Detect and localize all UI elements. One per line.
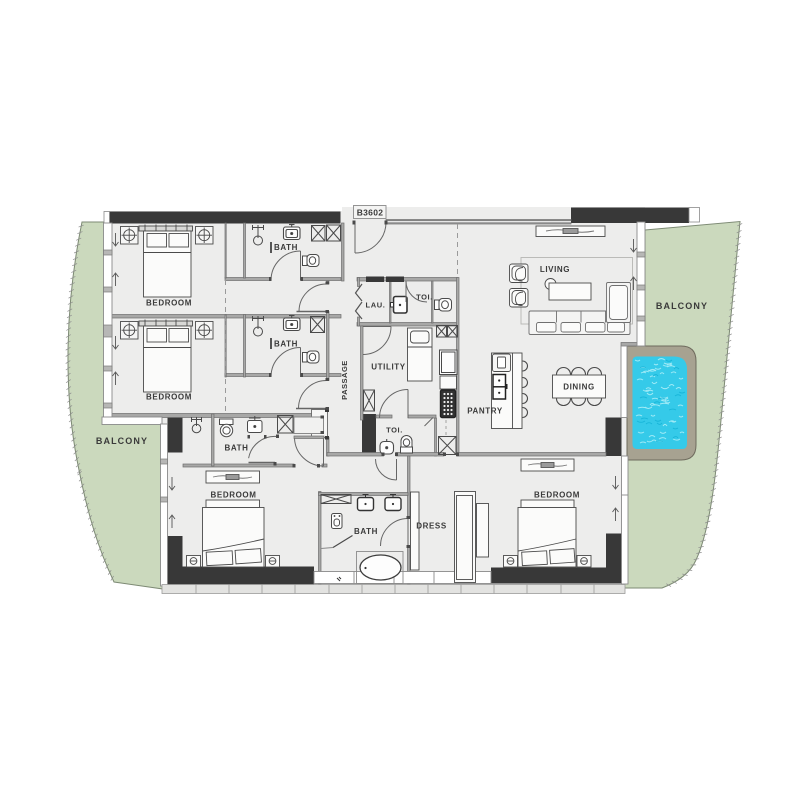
svg-text:BALCONY: BALCONY [96, 436, 148, 446]
svg-text:PASSAGE: PASSAGE [340, 360, 349, 400]
svg-text:BATH: BATH [274, 243, 298, 252]
svg-text:BATH: BATH [274, 340, 298, 349]
svg-text:LAU.: LAU. [366, 301, 386, 310]
svg-text:BEDROOM: BEDROOM [211, 491, 257, 500]
svg-text:UTILITY: UTILITY [371, 363, 405, 372]
svg-text:BATH: BATH [354, 527, 378, 536]
svg-text:TOI.: TOI. [416, 293, 433, 302]
svg-text:BEDROOM: BEDROOM [534, 491, 580, 500]
svg-text:BEDROOM: BEDROOM [146, 299, 192, 308]
svg-text:DINING: DINING [563, 383, 595, 392]
svg-text:LIVING: LIVING [540, 265, 570, 274]
svg-text:PANTRY: PANTRY [467, 407, 503, 416]
svg-text:BATH: BATH [224, 444, 248, 453]
svg-text:BALCONY: BALCONY [656, 301, 708, 311]
svg-text:TOI.: TOI. [386, 426, 403, 435]
svg-text:DRESS: DRESS [416, 522, 447, 531]
svg-text:B3602: B3602 [357, 208, 384, 218]
svg-text:BEDROOM: BEDROOM [146, 393, 192, 402]
